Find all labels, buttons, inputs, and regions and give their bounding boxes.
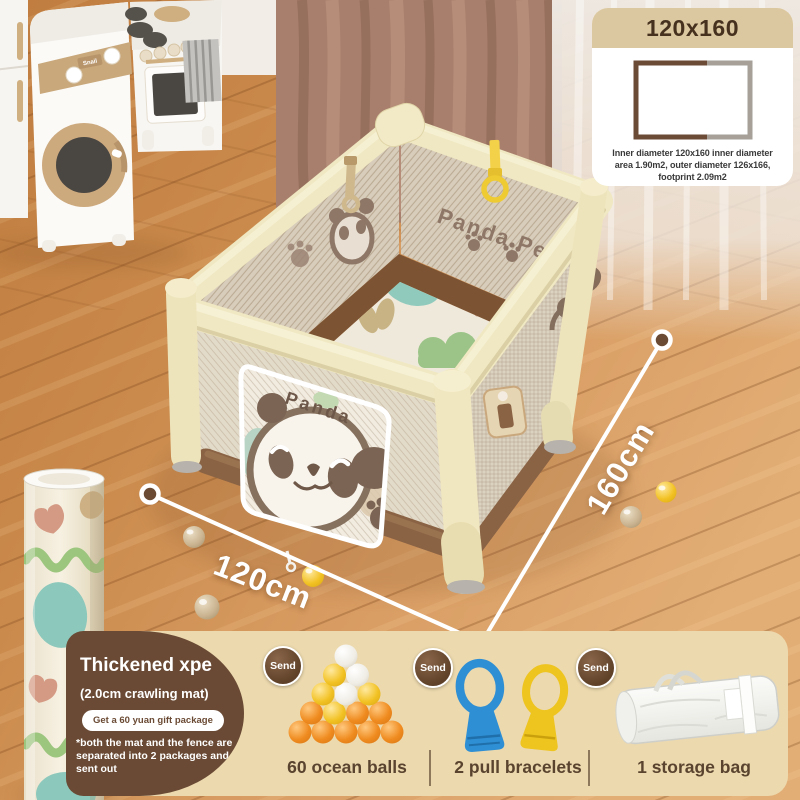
gift-label-storage-bag: 1 storage bag <box>637 757 751 778</box>
divider <box>429 750 431 786</box>
size-title: 120x160 <box>592 8 793 48</box>
send-badge: Send <box>263 646 303 686</box>
gift-label-ocean-balls: 60 ocean balls <box>287 757 407 778</box>
size-info-card: 120x160 Inner diameter 120x160 inner dia… <box>592 8 793 186</box>
size-caption: Inner diameter 120x160 inner diameter ar… <box>592 148 793 184</box>
toy-fridge <box>0 0 28 218</box>
ocean-balls-art <box>289 645 404 744</box>
send-badge: Send <box>413 648 453 688</box>
gift-panel: Thickened xpe (2.0cm crawling mat) Get a… <box>66 631 788 796</box>
toy-stove <box>125 0 222 152</box>
product-image: Snail <box>0 0 800 800</box>
divider <box>588 750 590 786</box>
pull-bracelets-art <box>458 661 567 752</box>
toy-washer: Snail <box>30 2 134 252</box>
gift-label-pull-bracelets: 2 pull bracelets <box>454 757 581 778</box>
wall-pocket <box>483 386 527 439</box>
send-badge: Send <box>576 648 616 688</box>
size-diagram <box>629 60 757 140</box>
storage-bag-art <box>612 664 780 748</box>
stove-towel <box>182 39 221 103</box>
